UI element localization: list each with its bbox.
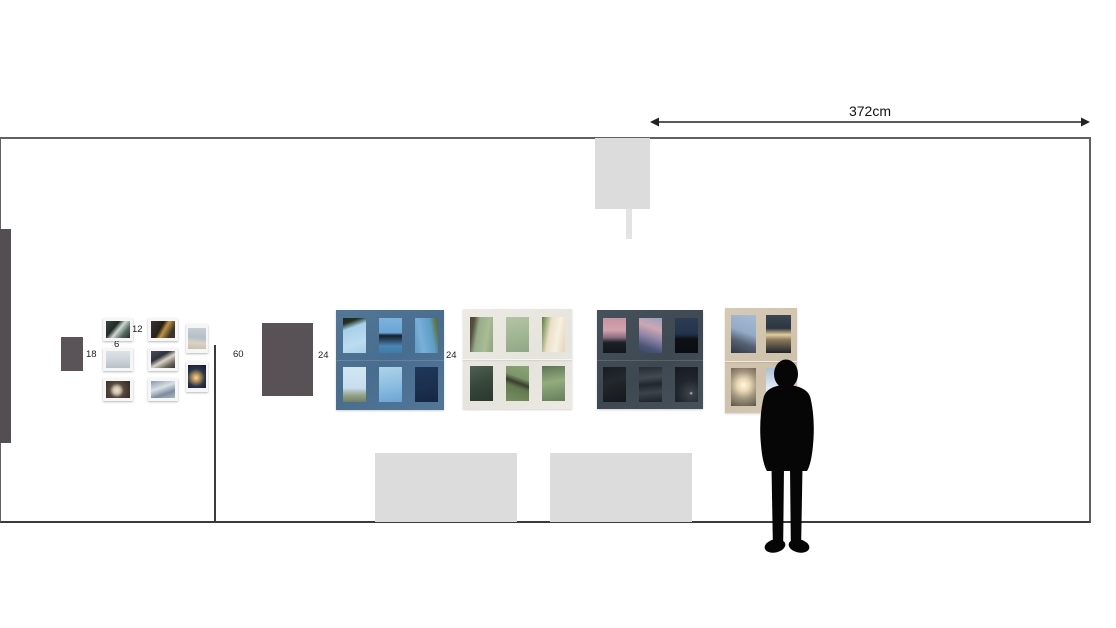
measurement-24-blue: 24	[318, 351, 329, 361]
snapshot-image	[188, 365, 206, 388]
measurement-12: 12	[132, 325, 143, 335]
polaroid-photo	[103, 348, 133, 371]
snapshot-image	[151, 351, 176, 368]
photo-pink-sunset-treeline	[603, 318, 626, 353]
photo-dark-cloud-streaks	[639, 367, 662, 402]
photo-sky-treetop	[343, 318, 366, 353]
dimension-arrow	[649, 116, 1091, 128]
small-dark-panel	[61, 337, 83, 371]
photo-sky-foliage-edge	[415, 318, 438, 353]
photo-branch-over-green	[506, 366, 529, 401]
photo-forest-path	[542, 366, 565, 401]
photo-sky-grasses	[731, 315, 756, 353]
measurement-18: 18	[86, 350, 97, 360]
bench-left	[375, 453, 517, 522]
snapshot-image	[151, 381, 176, 398]
photo-deep-navy-sky	[415, 367, 438, 402]
photo-pink-clouds	[639, 318, 662, 353]
photo-tree-trunk-grass	[470, 317, 493, 352]
left-wall-edge-panel	[0, 229, 11, 443]
polaroid-photo	[148, 318, 178, 341]
photo-night-sky	[603, 367, 626, 402]
photo-sky-over-field	[343, 367, 366, 402]
snapshot-image	[188, 328, 206, 349]
exhibition-layout-canvas: 372cm 18 6 12 60 24 24	[0, 0, 1116, 628]
photo-sunrise-field	[731, 368, 756, 406]
artwork-blue-sky-grid	[336, 310, 444, 410]
hanging-sign-stem	[626, 209, 632, 239]
photo-dark-horizon	[675, 318, 698, 353]
polaroid-photo	[186, 324, 208, 353]
photo-warm-light-trees	[542, 317, 565, 352]
photo-sky-silhouette-band	[379, 318, 402, 353]
partition-line	[214, 345, 216, 523]
snapshot-image	[151, 321, 176, 338]
hanging-sign-panel	[595, 138, 650, 209]
bench-right	[550, 453, 692, 522]
snapshot-image	[106, 351, 131, 368]
large-dark-panel	[262, 323, 313, 396]
photo-sunset-glow	[766, 315, 791, 353]
photo-green-blur	[506, 317, 529, 352]
snapshot-image	[106, 381, 131, 398]
photo-dense-forest	[470, 366, 493, 401]
polaroid-photo	[103, 318, 133, 341]
polaroid-photo	[148, 348, 178, 371]
artwork-dusk-grid	[597, 310, 703, 409]
polaroid-photo	[148, 378, 178, 401]
artwork-forest-grid	[463, 309, 572, 409]
photo-blue-gradient-sky	[379, 367, 402, 402]
measurement-60: 60	[233, 350, 244, 360]
measurement-24-cream: 24	[446, 351, 457, 361]
snapshot-image	[106, 321, 131, 338]
polaroid-photo	[103, 378, 133, 401]
person-silhouette	[756, 359, 818, 557]
polaroid-photo	[186, 361, 208, 392]
photo-moonlit-sky	[675, 367, 698, 402]
